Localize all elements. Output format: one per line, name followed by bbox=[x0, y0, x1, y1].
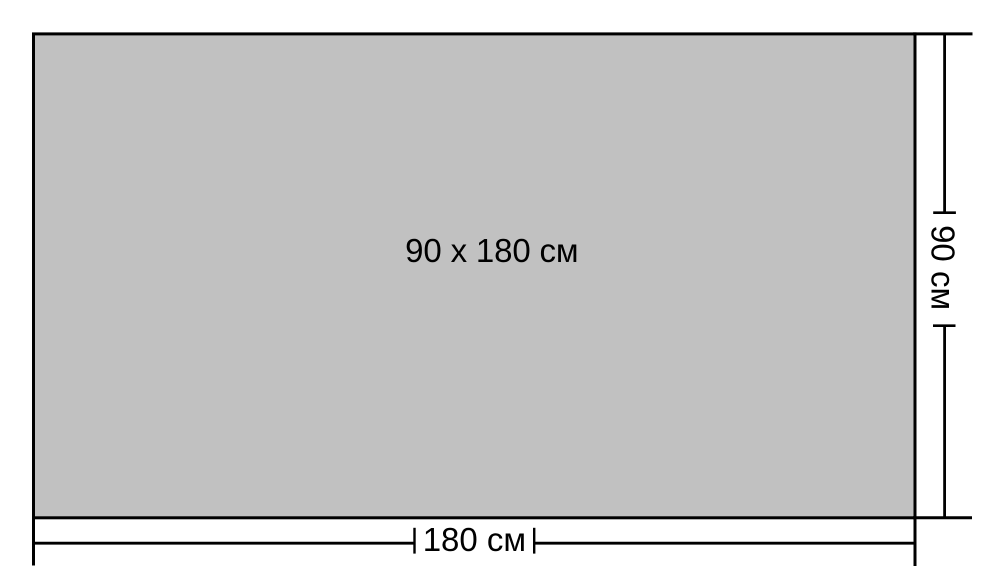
svg-text:180 см: 180 см bbox=[423, 521, 526, 558]
svg-text:90 x 180 см: 90 x 180 см bbox=[405, 232, 578, 269]
svg-text:90 см: 90 см bbox=[924, 225, 961, 310]
